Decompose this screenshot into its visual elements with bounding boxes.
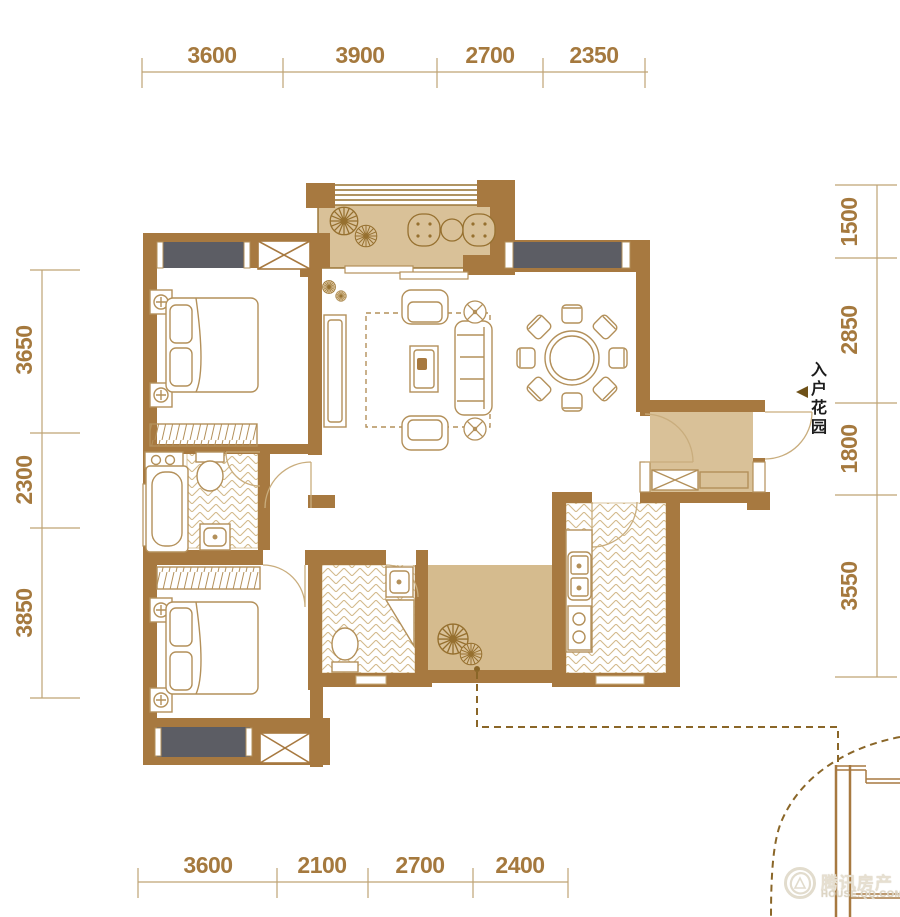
balcony-plant-icon	[330, 207, 358, 235]
dim-right-2: 2850	[836, 305, 862, 354]
floor-plan-canvas: 3600 3900 2700 2350 3600 2100 2700 2400 …	[0, 0, 900, 917]
living-plant-top	[464, 301, 486, 323]
dim-right-4: 3550	[836, 561, 862, 610]
entrance-door-arc	[765, 412, 812, 459]
dim-right-1: 1500	[836, 197, 862, 246]
hall-door-arc	[265, 462, 311, 508]
bedroom2-door-arc	[263, 565, 305, 607]
entry-bench	[652, 470, 748, 490]
kitchen-fixtures	[566, 530, 592, 652]
wardrobe1	[150, 424, 257, 446]
toilet2-bowl	[332, 628, 358, 660]
dim-top-3: 2700	[465, 42, 514, 68]
toilet2-tank	[332, 662, 358, 672]
balcony-railing	[335, 185, 477, 200]
balcony-basin2	[463, 214, 495, 246]
dim-left-2: 2300	[11, 455, 37, 504]
dining-set	[517, 305, 627, 411]
wardrobe2	[157, 567, 260, 589]
entry-window-right	[753, 462, 765, 492]
dining-passage-floor	[428, 565, 552, 673]
dim-top-1: 3600	[187, 42, 236, 68]
bedroom2-furniture	[150, 567, 260, 712]
dim-right-3: 1800	[836, 424, 862, 473]
small-plant-icon	[322, 280, 335, 293]
entry-garden-label: 入户花园	[806, 361, 826, 437]
balcony-basin1	[408, 214, 440, 246]
bedroom2-window	[157, 727, 250, 757]
watermark-logo-icon	[786, 869, 815, 898]
balcony-sliding-door2	[400, 272, 468, 279]
dim-bottom-1: 3600	[183, 852, 232, 878]
floor-plan-page: 3600 3900 2700 2350 3600 2100 2700 2400 …	[0, 0, 900, 917]
bedroom1-window	[158, 242, 248, 268]
dim-left-3: 3850	[11, 588, 37, 637]
toilet1-bowl	[197, 461, 223, 491]
dim-top-2: 3900	[335, 42, 384, 68]
dim-bottom-4: 2400	[495, 852, 544, 878]
balcony-round-table	[441, 219, 463, 241]
watermark-site: HOUSE.QQ.COM	[821, 889, 900, 900]
dim-bottom-3: 2700	[395, 852, 444, 878]
dim-top-4: 2350	[569, 42, 618, 68]
dim-left-1: 3650	[11, 325, 37, 374]
living-plant-bottom	[464, 418, 486, 440]
dim-bottom-2: 2100	[297, 852, 346, 878]
bedroom1-furniture	[150, 290, 258, 446]
entry-window-left	[640, 462, 650, 492]
living-window	[512, 242, 624, 268]
